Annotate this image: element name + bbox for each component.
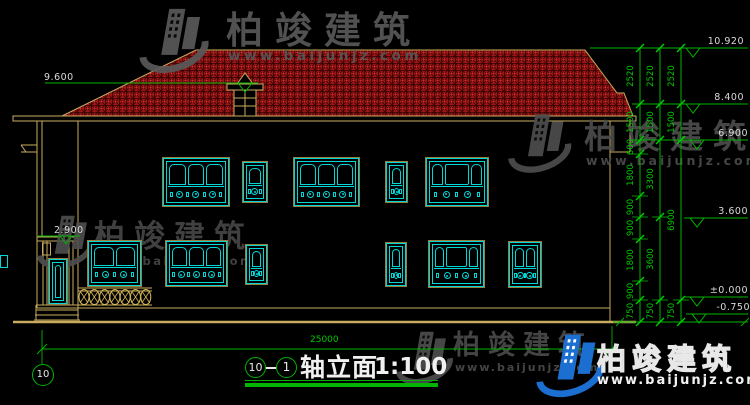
- watermark-name-blue: 柏竣建筑: [597, 345, 737, 374]
- watermark-blue-layer: 柏竣建筑 www.baijunjz.com: [0, 0, 750, 405]
- cad-elevation-drawing: 柏竣建筑 www.baijunjz.com 柏竣建筑 www.baijunjz.…: [0, 0, 750, 405]
- watermark-logo-blue: [540, 335, 601, 394]
- watermark-url-blue: www.baijunjz.com: [597, 374, 750, 387]
